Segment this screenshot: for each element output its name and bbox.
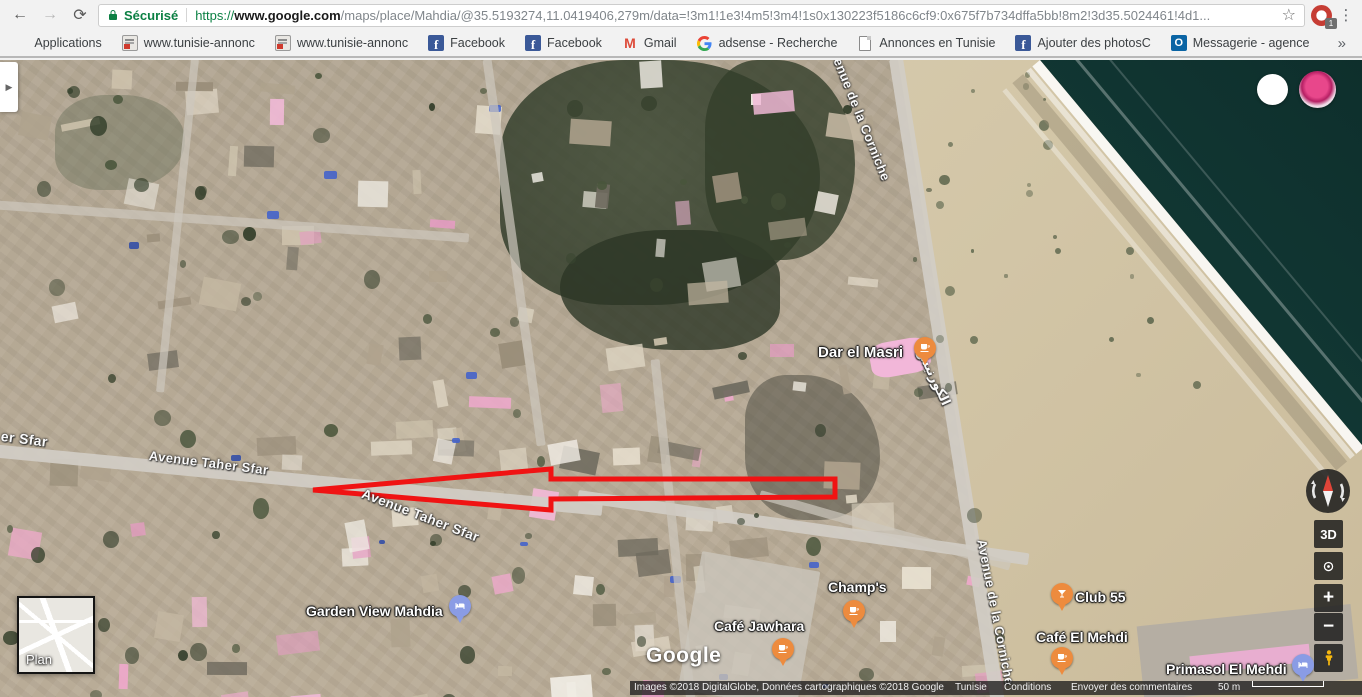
bookmark-ajouter-photos[interactable]: fAjouter des photosC [1006,32,1159,54]
cafe-pin-cafe-jawhara[interactable] [772,638,794,660]
imagery-credits: Images ©2018 DigitalGlobe, Données carto… [634,681,944,695]
cafe-pin-dar-el-masri[interactable] [914,337,936,359]
apps-grid-icon [15,36,28,49]
cafe-pin-champs[interactable] [843,600,865,622]
facebook-icon: f [1015,35,1031,51]
my-location-button[interactable] [1314,552,1343,580]
google-logo[interactable]: Google [646,644,721,668]
feedback-link[interactable]: Envoyer des commentaires [1071,681,1192,695]
place-label-cafe-jawhara[interactable]: Café Jawhara [714,618,804,634]
url-text: https://www.google.com/maps/place/Mahdia… [195,8,1273,23]
site-favicon [275,35,291,51]
place-label-club-55[interactable]: Club 55 [1075,589,1126,605]
pegman-button[interactable] [1314,644,1343,672]
place-label-primasol[interactable]: Primasol El Mehdi [1166,661,1287,677]
facebook-icon: f [428,35,444,51]
browser-toolbar: ← → ⟳ Sécurisé https://www.google.com/ma… [0,0,1362,30]
bookmark-adsense[interactable]: adsense - Recherche [688,32,847,54]
forward-button[interactable]: → [38,3,62,27]
cafe-pin-cafe-el-mehdi[interactable] [1051,647,1073,669]
place-label-champs[interactable]: Champ's [828,579,887,595]
facebook-icon: f [525,35,541,51]
zoom-out-button[interactable]: − [1314,613,1343,641]
profile-badge: 1 [1325,18,1337,29]
minimap-plan-toggle[interactable]: Plan [17,596,95,674]
compass-needle-icon [1306,469,1350,513]
attribution-bar: Images ©2018 DigitalGlobe, Données carto… [630,681,1362,695]
minimap-label: Plan [26,652,52,667]
profile-avatar[interactable]: 1 [1311,5,1332,26]
back-button[interactable]: ← [8,3,32,27]
gmail-icon: M [622,35,638,51]
site-favicon [122,35,138,51]
bookmark-applications[interactable]: Applications [6,32,111,54]
expand-arrow-icon: ▶ [6,82,13,93]
bookmark-tunisie-annonce-1[interactable]: www.tunisie-annonc [113,32,264,54]
side-panel-expand-button[interactable]: ▶ [0,62,18,112]
bookmarks-overflow-icon[interactable]: » [1328,35,1356,52]
scale-bar [1252,681,1324,687]
outlook-icon: O [1171,35,1187,51]
place-label-cafe-el-mehdi[interactable]: Café El Mehdi [1036,629,1128,645]
bookmark-annonces[interactable]: Annonces en Tunisie [848,32,1004,54]
map-viewport[interactable]: er Sfar Avenue Taher Sfar Avenue Taher S… [0,60,1362,697]
browser-menu-icon[interactable]: ⋮ [1338,6,1354,24]
tilt-3d-button[interactable]: 3D [1314,520,1343,548]
bookmarks-bar: Applications www.tunisie-annonc www.tuni… [0,30,1362,58]
refresh-button[interactable]: ⟳ [68,3,92,27]
region-label: Tunisie [955,681,987,695]
bookmark-gmail[interactable]: MGmail [613,32,686,54]
pegman-icon [1321,649,1337,667]
place-label-garden-view[interactable]: Garden View Mahdia [306,603,443,619]
account-avatar[interactable] [1299,71,1336,108]
security-label: Sécurisé [124,8,178,23]
bar-pin-club-55[interactable] [1051,583,1073,605]
bookmark-star-icon[interactable]: ☆ [1282,5,1296,25]
zoom-in-button[interactable]: + [1314,584,1343,612]
place-label-dar-el-masri[interactable]: Dar el Masri [818,344,903,361]
terms-link[interactable]: Conditions [1004,681,1051,695]
lodging-pin-garden-view[interactable] [449,595,471,617]
page-icon [857,35,873,51]
scale-label: 50 m [1218,681,1240,695]
omnibox-divider [186,8,187,22]
bookmark-messagerie[interactable]: OMessagerie - agence [1162,32,1319,54]
map-circle-button[interactable] [1257,74,1288,105]
bookmark-facebook-2[interactable]: fFacebook [516,32,611,54]
address-bar[interactable]: Sécurisé https://www.google.com/maps/pla… [98,4,1305,27]
compass-control[interactable] [1306,469,1350,513]
lodging-pin-primasol[interactable] [1292,654,1314,676]
secure-lock-icon [107,9,119,21]
google-icon [697,35,713,51]
location-target-icon [1321,559,1336,574]
browser-chrome: ← → ⟳ Sécurisé https://www.google.com/ma… [0,0,1362,60]
bookmark-facebook-1[interactable]: fFacebook [419,32,514,54]
bookmark-tunisie-annonce-2[interactable]: www.tunisie-annonc [266,32,417,54]
